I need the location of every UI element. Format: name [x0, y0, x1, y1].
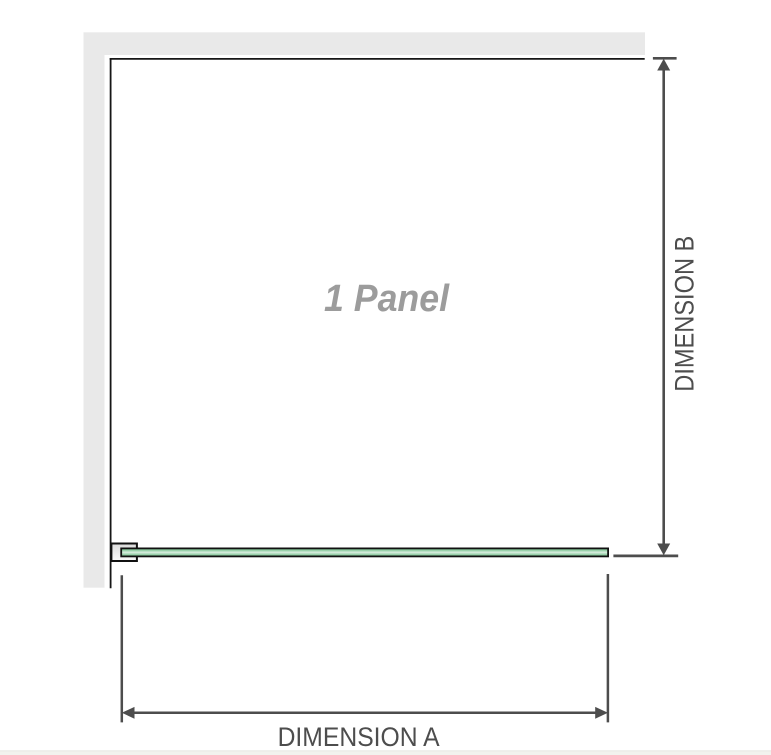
svg-text:DIMENSION B: DIMENSION B [670, 236, 700, 392]
svg-text:1 Panel: 1 Panel [324, 278, 450, 320]
svg-text:DIMENSION A: DIMENSION A [278, 722, 440, 752]
